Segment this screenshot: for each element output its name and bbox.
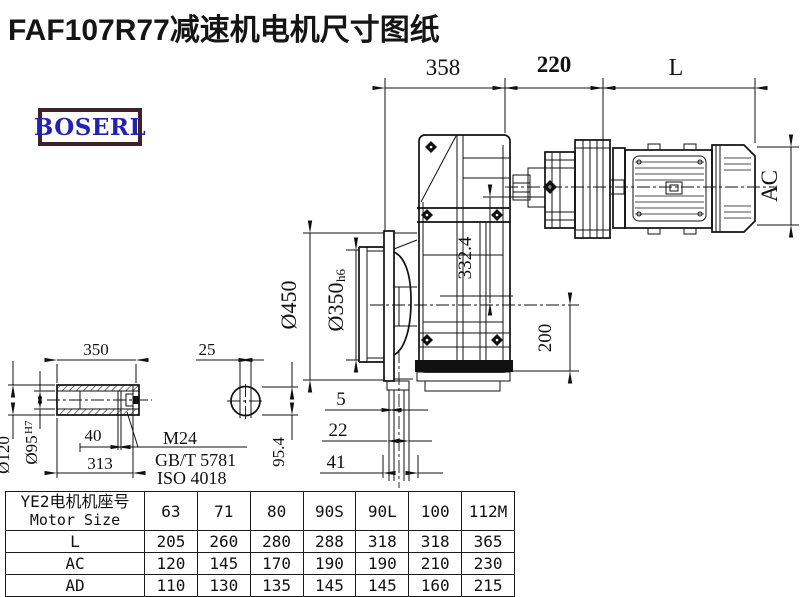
dim-95-label: Ø95 xyxy=(22,435,41,464)
column-header: 63 xyxy=(145,492,198,531)
column-header: 100 xyxy=(409,492,462,531)
dim-40-label: 40 xyxy=(85,426,102,445)
table-cell: 120 xyxy=(145,553,198,575)
table-cell: 160 xyxy=(409,575,462,597)
input-adapter xyxy=(513,140,624,238)
table-cell: 170 xyxy=(250,553,303,575)
header-english: Motor Size xyxy=(6,512,144,529)
dim-313-label: 313 xyxy=(87,454,113,473)
dim-332-label: 332.4 xyxy=(455,236,476,279)
table-row: AD 110 130 135 145 145 160 215 xyxy=(6,575,515,597)
table-cell: 210 xyxy=(409,553,462,575)
thread-spec-label: M24 xyxy=(163,428,197,448)
plug-bolt-symbols xyxy=(421,141,557,346)
dim-shaft-350-label: 350 xyxy=(83,340,109,359)
row-label: L xyxy=(6,531,145,553)
table-cell: 365 xyxy=(462,531,515,553)
table-header-motor-size: YE2电机机座号 Motor Size xyxy=(6,492,145,531)
table-row: AC 120 145 170 190 190 210 230 xyxy=(6,553,515,575)
dim-120-label: Ø120 xyxy=(0,436,13,474)
table-cell: 130 xyxy=(197,575,250,597)
brand-logo-text: BOSERL xyxy=(34,116,146,139)
technical-drawing: 358 220 L Ø450 Ø350 h6 xyxy=(0,0,800,492)
page-title: FAF107R77减速机电机尺寸图纸 xyxy=(8,5,440,49)
dim-5-label: 5 xyxy=(336,389,346,410)
column-header: 71 xyxy=(197,492,250,531)
dim-L-label: L xyxy=(669,55,684,81)
motor-size-table: YE2电机机座号 Motor Size 63 71 80 90S 90L 100… xyxy=(5,491,515,597)
row-label: AC xyxy=(6,553,145,575)
table-cell: 288 xyxy=(303,531,356,553)
dim-220-label: 220 xyxy=(537,52,572,77)
table-cell: 318 xyxy=(409,531,462,553)
table-cell: 110 xyxy=(145,575,198,597)
table-cell: 145 xyxy=(303,575,356,597)
table-cell: 215 xyxy=(462,575,515,597)
table-cell: 318 xyxy=(356,531,409,553)
table-row: L 205 260 280 288 318 318 365 xyxy=(6,531,515,553)
table-cell: 280 xyxy=(250,531,303,553)
table-cell: 205 xyxy=(145,531,198,553)
motor xyxy=(613,144,755,234)
column-header: 112M xyxy=(462,492,515,531)
table-header-row: YE2电机机座号 Motor Size 63 71 80 90S 90L 100… xyxy=(6,492,515,531)
dim-450-label: Ø450 xyxy=(276,281,301,330)
dim-95-tolerance: H7 xyxy=(23,420,35,434)
dim-25-label: 25 xyxy=(199,340,216,359)
standard-iso-label: ISO 4018 xyxy=(157,468,227,488)
hollow-shaft-detail xyxy=(8,360,298,478)
table-cell: 135 xyxy=(250,575,303,597)
column-header: 80 xyxy=(250,492,303,531)
dim-41-label: 41 xyxy=(327,452,346,473)
dim-200-label: 200 xyxy=(535,324,556,353)
output-flange xyxy=(359,231,417,390)
table-cell: 260 xyxy=(197,531,250,553)
table-cell: 190 xyxy=(356,553,409,575)
table-cell: 145 xyxy=(197,553,250,575)
row-label: AD xyxy=(6,575,145,597)
table-cell: 145 xyxy=(356,575,409,597)
column-header: 90L xyxy=(356,492,409,531)
dim-AC-label: AC xyxy=(757,170,782,202)
table-cell: 190 xyxy=(303,553,356,575)
standard-gb-label: GB/T 5781 xyxy=(155,450,236,470)
table-cell: 230 xyxy=(462,553,515,575)
dim-954-label: 95.4 xyxy=(269,437,288,467)
dim-350-tolerance: h6 xyxy=(333,269,348,283)
dim-358-label: 358 xyxy=(426,55,461,80)
dim-350-label: Ø350 xyxy=(323,283,348,332)
header-chinese: YE2电机机座号 xyxy=(6,493,144,511)
brand-logo: BOSERL xyxy=(38,108,142,146)
dim-22-label: 22 xyxy=(329,420,348,441)
column-header: 90S xyxy=(303,492,356,531)
